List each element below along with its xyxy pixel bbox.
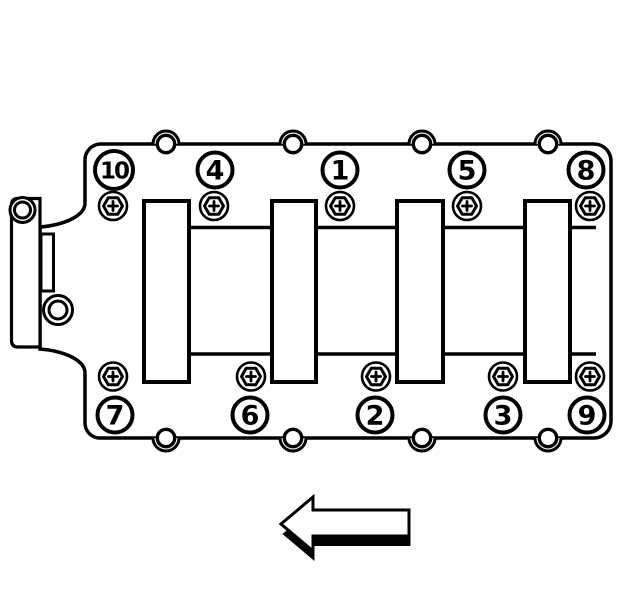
- svg-text:9: 9: [578, 401, 597, 432]
- svg-text:5: 5: [458, 156, 477, 187]
- bolt-icon: [576, 192, 604, 220]
- cam-tower-2: [272, 201, 316, 382]
- front-direction-arrow-icon: [281, 497, 411, 561]
- svg-text:8: 8: [577, 156, 596, 187]
- bolt-icon: [362, 363, 390, 391]
- bolt-icon: [99, 363, 127, 391]
- svg-text:10: 10: [100, 159, 129, 185]
- bolt-icon: [200, 192, 228, 220]
- callout-6: 6: [233, 398, 268, 433]
- diagram-canvas: 10 4 1 5 8 7 6 2 3 9: [0, 0, 640, 592]
- bolt-sequence-diagram: 10 4 1 5 8 7 6 2 3 9: [0, 0, 640, 592]
- callout-10: 10: [95, 151, 133, 189]
- callout-4: 4: [198, 153, 233, 188]
- cam-tower-1: [144, 201, 189, 382]
- bolt-icon: [326, 192, 354, 220]
- bolt-icon: [99, 192, 127, 220]
- svg-text:2: 2: [366, 401, 385, 432]
- bolt-icon: [576, 363, 604, 391]
- callout-7: 7: [98, 398, 133, 433]
- svg-text:7: 7: [106, 401, 125, 432]
- callout-8: 8: [569, 153, 604, 188]
- callout-2: 2: [358, 398, 393, 433]
- svg-text:3: 3: [494, 401, 513, 432]
- svg-text:6: 6: [241, 401, 260, 432]
- cam-tower-3: [397, 201, 443, 382]
- callout-1: 1: [323, 153, 358, 188]
- bolt-icon: [237, 363, 265, 391]
- bolt-icon: [453, 192, 481, 220]
- callout-9: 9: [570, 398, 605, 433]
- tab-slot: [41, 234, 54, 291]
- left-bolt-hole: [44, 296, 73, 325]
- svg-text:4: 4: [206, 156, 225, 187]
- callout-5: 5: [450, 153, 485, 188]
- bolt-icon: [489, 363, 517, 391]
- cam-tower-4: [525, 201, 570, 382]
- svg-text:1: 1: [331, 156, 350, 187]
- tab-bolt-hole: [10, 198, 35, 223]
- callout-3: 3: [486, 398, 521, 433]
